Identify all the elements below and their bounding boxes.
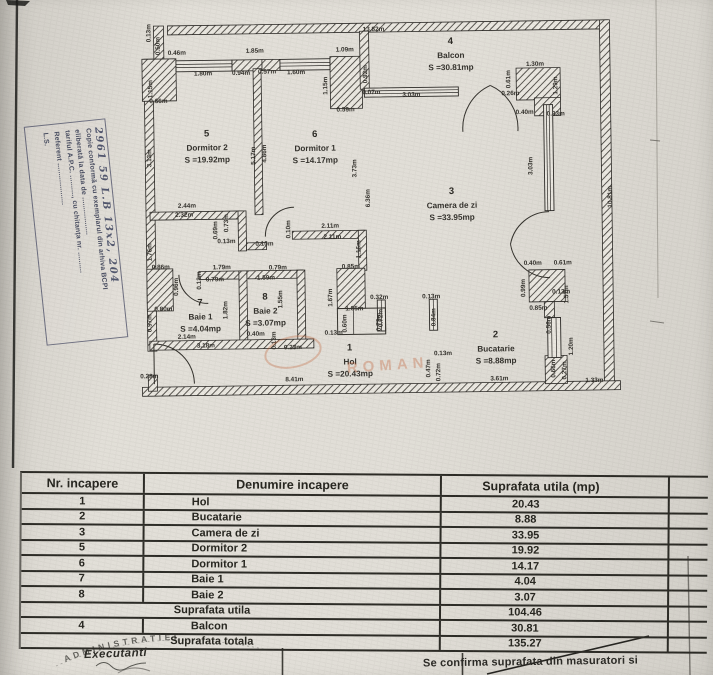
room-number: 5 [204, 128, 210, 139]
cell-area: 30.81 [441, 621, 669, 636]
dimension-label: 0.84m [430, 308, 437, 327]
room-name: Camera de zi [427, 201, 478, 211]
cell-nr: 3 [22, 525, 145, 539]
dimension-label: 1.57m [563, 285, 570, 304]
dimension-label: 0.40m [524, 260, 543, 267]
dimension-label: 0.13m [422, 293, 441, 300]
dimension-label: 0.07m [362, 89, 381, 96]
room-name: Baie 2 [253, 306, 278, 315]
cell-overflow [669, 592, 707, 606]
dimension-label: 0.97m [146, 314, 153, 333]
dimension-label: 0.69m [212, 221, 219, 240]
room-number: 3 [449, 186, 455, 197]
dimension-label: 1.05m [345, 305, 364, 312]
signature-squiggle [96, 663, 146, 671]
cell-area: 135.27 [441, 636, 669, 651]
dimension-label: 0.92m [362, 65, 369, 84]
room-name: Baie 1 [188, 312, 213, 321]
dimension-label: 1.67m [327, 288, 334, 307]
dimension-label: 0.59m [336, 106, 355, 113]
dimension-label: 1.60m [287, 69, 306, 76]
cell-name: Bucatarie [145, 510, 442, 526]
cell-area: 33.95 [442, 528, 670, 543]
cell-overflow [669, 623, 707, 637]
executant-label: Executanti [84, 647, 148, 661]
room-area: S =19.92mp [185, 155, 230, 165]
dimension-label: 0.85m [342, 263, 361, 270]
room-area: S =3.07mp [245, 318, 286, 328]
svg-text:ROMAN: ROMAN [346, 354, 429, 377]
cell-name: Hol [145, 495, 442, 511]
dimension-label: 0.66m [149, 98, 168, 105]
dimension-label: 1.09m [336, 46, 355, 53]
dimension-label: 0.13m [217, 238, 236, 245]
cell-overflow [670, 530, 708, 544]
room-name: Bucatarie [477, 344, 515, 354]
dimension-label: 5.17m [250, 146, 257, 165]
header-nr: Nr. incapere [22, 473, 145, 493]
dimension-label: 0.26m [501, 90, 520, 97]
cell-summary-label: Suprafata totala [21, 634, 441, 650]
room-name: Balcon [437, 51, 464, 60]
dimension-label: 0.99m [520, 279, 527, 298]
dimension-label: 0.73m [223, 214, 230, 233]
room-name: Dormitor 2 [186, 143, 228, 153]
dimension-label: 0.85m [529, 305, 548, 312]
dimension-label: 3.73m [351, 159, 358, 178]
dimension-label: 2.14m [178, 334, 197, 341]
dimension-label: 3.13m [146, 149, 153, 168]
cell-summary-label: Suprafata utila [21, 603, 441, 619]
dimension-label: 3.18m [197, 342, 216, 349]
room-area: S =8.88mp [476, 356, 517, 366]
dimension-label: 6.36m [365, 189, 372, 208]
cell-name: Dormitor 2 [144, 541, 441, 557]
cell-area: 20.43 [442, 497, 670, 512]
cell-name: Baie 1 [144, 572, 441, 588]
cell-nr: 7 [21, 572, 144, 586]
dimension-label: 2.11m [323, 234, 341, 241]
room-name: Dormitor 1 [294, 144, 336, 154]
cell-overflow [670, 499, 708, 513]
room-area: S =30.81mp [428, 63, 473, 73]
dimension-label: 0.79m [206, 276, 225, 283]
room-number: 8 [262, 292, 268, 303]
cell-nr: 4 [21, 618, 144, 632]
dimension-label: 0.79m [269, 264, 288, 271]
dimension-label: 0.28m [140, 373, 159, 380]
cell-overflow [670, 514, 708, 528]
dimension-label: 0.27m [561, 361, 568, 380]
cell-name: Dormitor 1 [144, 557, 441, 573]
dimension-label: 1.29m [552, 76, 559, 95]
dimension-label: 1.33m [585, 377, 604, 384]
room-number: 2 [493, 329, 499, 340]
dimension-label: 0.46m [168, 50, 187, 57]
cell-nr: 6 [21, 556, 144, 570]
dimension-label: 0.33m [547, 110, 566, 117]
cell-overflow [669, 561, 707, 575]
dimension-label: 8.41m [285, 376, 304, 383]
dimension-label: 0.66m [550, 359, 557, 378]
cell-name: Camera de zi [145, 526, 442, 542]
dimension-label: 13.82m [363, 26, 385, 33]
windows [176, 56, 561, 363]
dimension-label: 0.61m [505, 70, 512, 89]
cell-name: Baie 2 [144, 588, 441, 604]
header-denumire: Denumire incapere [145, 474, 442, 495]
dimension-label: 0.13m [325, 330, 344, 337]
dimension-label: 0.80m [154, 306, 173, 313]
dimension-label: 1.76m [146, 243, 153, 262]
dimension-label: 2.32m [175, 212, 194, 219]
dimension-label: 0.13m [145, 24, 152, 43]
cell-area: 3.07 [441, 590, 669, 605]
dimension-label: 0.94m [232, 70, 251, 77]
cell-area: 19.92 [441, 543, 669, 558]
dimension-label: 3.03m [402, 91, 421, 98]
room-number: 4 [448, 36, 454, 47]
dimension-label: 0.23m [284, 344, 303, 351]
dimension-label: 0.56m [545, 315, 552, 334]
dimension-label: 1.82m [222, 301, 229, 320]
dimension-label: 1.15m [322, 76, 329, 95]
dimension-label: 0.40m [516, 109, 535, 116]
dimension-label: 0.61m [554, 259, 573, 266]
cell-name: Balcon [144, 619, 441, 635]
dimension-label: 0.13m [434, 350, 453, 357]
dimension-label: 0.13m [196, 271, 203, 290]
cell-area: 14.17 [441, 559, 669, 574]
room-number: 6 [312, 129, 318, 140]
cell-nr: 2 [22, 510, 145, 524]
room-area: S =14.17mp [293, 156, 338, 166]
dimension-label: 4.86m [261, 144, 268, 163]
dimension-label: 1.16m [355, 240, 362, 259]
cell-overflow [669, 638, 707, 652]
dimension-label: 0.72m [375, 313, 382, 332]
room-number: 7 [197, 297, 203, 308]
dimension-label: 1.59m [257, 274, 276, 281]
cell-area: 104.46 [441, 605, 669, 620]
cell-nr: 5 [21, 541, 144, 555]
dimension-label: 0.72m [435, 363, 442, 382]
dimension-label: 1.80m [194, 70, 213, 77]
dimension-label: 1.55m [277, 290, 284, 309]
cell-overflow [669, 607, 707, 621]
header-suprafata: Suprafata utila (mp) [442, 476, 670, 497]
dimension-label: 0.40m [247, 331, 266, 338]
dimension-label: 3.61m [490, 375, 509, 382]
dimension-label: 0.57m [258, 68, 277, 75]
dimension-label: 1.85m [246, 48, 265, 55]
cell-nr: 1 [22, 494, 145, 508]
dimension-label: 2.44m [178, 203, 197, 210]
dimension-label: 0.60m [341, 314, 348, 333]
dimension-label: 2.11m [321, 223, 339, 230]
dimension-label: 1.20m [568, 337, 575, 356]
cell-overflow [669, 576, 707, 590]
scanned-document-page: 13.82m0.46m1.85m1.09m1.80m0.94m0.57m1.60… [0, 0, 713, 675]
dimension-label: 1.15m [147, 80, 154, 99]
dimension-label: 0.10m [285, 220, 292, 239]
dimension-label: 10.81m [607, 186, 614, 208]
dimension-label: 1.30m [526, 61, 545, 68]
room-area: S =4.04mp [180, 324, 221, 334]
dimension-label: 1.79m [213, 264, 232, 271]
dimension-label: 3.03m [527, 156, 534, 175]
room-number: 1 [347, 342, 353, 353]
table-body: 1Hol20.432Bucatarie8.883Camera de zi33.9… [21, 494, 708, 654]
cell-nr: 8 [21, 587, 144, 601]
dimension-label: 0.32m [370, 294, 389, 301]
dimension-label: 0.13m [271, 331, 278, 350]
dimension-label: 0.50m [155, 37, 162, 56]
cell-area: 8.88 [442, 512, 670, 527]
dimension-label: 0.96m [173, 277, 180, 296]
dimension-label: 0.10m [255, 240, 274, 247]
cell-area: 4.04 [441, 574, 669, 589]
dimension-label: 0.86m [152, 264, 171, 271]
cell-overflow [669, 545, 707, 559]
areas-table: Nr. incapere Denumire incapere Suprafata… [19, 471, 708, 654]
room-area: S =33.95mp [429, 213, 474, 223]
